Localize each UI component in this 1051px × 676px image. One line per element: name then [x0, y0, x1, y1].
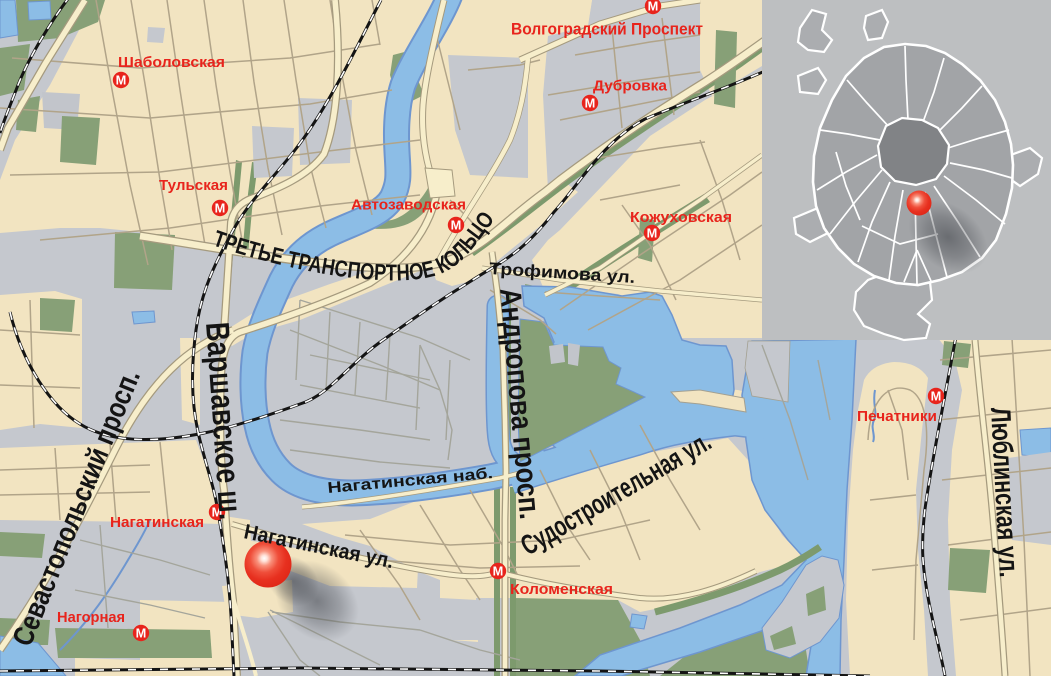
svg-text:Тульская: Тульская [159, 178, 228, 194]
svg-text:Дубровка: Дубровка [593, 79, 668, 95]
svg-text:Волгоградский Проспект: Волгоградский Проспект [511, 21, 703, 39]
svg-text:Автозаводская: Автозаводская [351, 198, 466, 214]
svg-text:М: М [647, 226, 658, 241]
svg-text:М: М [493, 564, 504, 579]
svg-text:Коломенская: Коломенская [510, 582, 613, 598]
svg-text:М: М [931, 389, 942, 404]
svg-text:М: М [648, 0, 659, 14]
svg-text:М: М [116, 73, 127, 88]
svg-text:Нагорная: Нагорная [57, 610, 125, 626]
svg-text:Кожуховская: Кожуховская [630, 210, 732, 226]
svg-text:М: М [451, 218, 462, 233]
svg-text:Печатники: Печатники [857, 409, 937, 425]
svg-text:М: М [215, 201, 226, 216]
svg-text:М: М [585, 96, 596, 111]
svg-text:Нагатинская: Нагатинская [110, 515, 204, 531]
svg-text:М: М [136, 626, 147, 641]
svg-text:Шаболовская: Шаболовская [118, 55, 225, 71]
